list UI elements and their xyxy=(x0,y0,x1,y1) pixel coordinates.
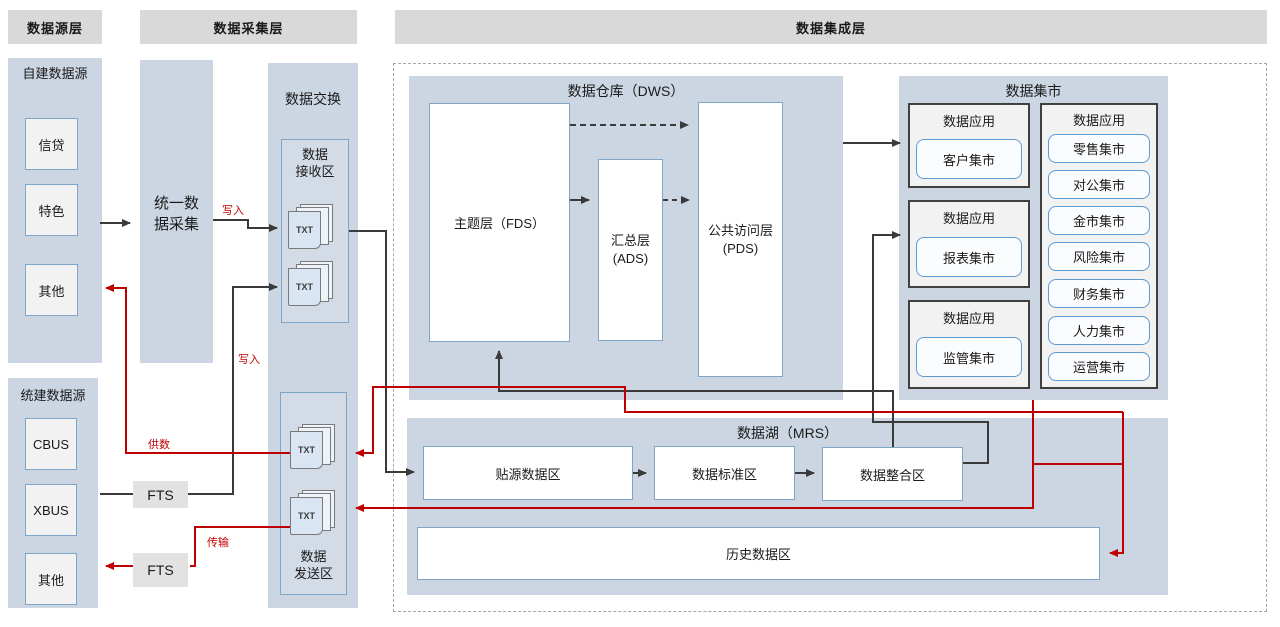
unified-source-title: 统建数据源 xyxy=(8,385,98,404)
lake-zone-source: 贴源数据区 xyxy=(423,446,633,500)
write-label-top: 写入 xyxy=(222,202,244,218)
source-box-cbus: CBUS xyxy=(25,418,77,470)
write-label-mid: 写入 xyxy=(238,351,260,367)
txt-page-icon: TXT xyxy=(288,211,321,249)
mart-pill-regulatory: 监管集市 xyxy=(916,337,1022,377)
lake-history-zone: 历史数据区 xyxy=(417,527,1100,580)
dws-title: 数据仓库（DWS） xyxy=(409,81,843,101)
mart-pill-financial-market: 金市集市 xyxy=(1048,206,1150,235)
mart-pill-report: 报表集市 xyxy=(916,237,1022,277)
send-zone-label: 数据 发送区 xyxy=(280,548,347,582)
data-app-title-1: 数据应用 xyxy=(908,111,1030,130)
architecture-diagram: 数据源层 数据采集层 数据集成层 自建数据源 信贷 特色 其他 统建数据源 CB… xyxy=(0,0,1280,627)
lake-zone-integrate: 数据整合区 xyxy=(822,447,963,501)
txt-file-icon-receive-2: TXT xyxy=(288,261,333,308)
receive-zone-label: 数据 接收区 xyxy=(281,146,349,180)
data-app-title-2: 数据应用 xyxy=(908,208,1030,227)
mart-pill-risk: 风险集市 xyxy=(1048,242,1150,271)
transfer-label: 传输 xyxy=(207,534,229,550)
txt-page-icon: TXT xyxy=(290,431,323,469)
pds-box: 公共访问层 (PDS) xyxy=(698,102,783,377)
source-box-other-self: 其他 xyxy=(25,264,78,316)
data-exchange-title: 数据交换 xyxy=(268,89,358,109)
txt-file-icon-receive-1: TXT xyxy=(288,204,333,251)
source-box-special: 特色 xyxy=(25,184,78,236)
mart-pill-customer: 客户集市 xyxy=(916,139,1022,179)
lake-zone-standard: 数据标准区 xyxy=(654,446,795,500)
source-box-xbus: XBUS xyxy=(25,484,77,536)
source-box-other-unified: 其他 xyxy=(25,553,77,605)
unified-data-collect-label: 统一数 据采集 xyxy=(140,193,213,235)
data-app-title-right: 数据应用 xyxy=(1040,110,1158,129)
data-mart-title: 数据集市 xyxy=(899,81,1168,101)
txt-file-icon-send-2: TXT xyxy=(290,490,335,537)
mart-pill-hr: 人力集市 xyxy=(1048,316,1150,345)
mart-pill-retail: 零售集市 xyxy=(1048,134,1150,163)
txt-page-icon: TXT xyxy=(288,268,321,306)
fds-box: 主题层（FDS） xyxy=(429,103,570,342)
data-app-title-3: 数据应用 xyxy=(908,308,1030,327)
source-box-credit: 信贷 xyxy=(25,118,78,170)
fts-lower-box: FTS xyxy=(133,553,188,587)
txt-page-icon: TXT xyxy=(290,497,323,535)
mart-pill-operation: 运营集市 xyxy=(1048,352,1150,381)
supply-label: 供数 xyxy=(148,436,170,452)
txt-file-icon-send-1: TXT xyxy=(290,424,335,471)
data-lake-title: 数据湖（MRS） xyxy=(407,423,1168,443)
ads-box: 汇总层 (ADS) xyxy=(598,159,663,341)
mart-pill-corporate: 对公集市 xyxy=(1048,170,1150,199)
fts-upper-box: FTS xyxy=(133,481,188,508)
mart-pill-finance: 财务集市 xyxy=(1048,279,1150,308)
self-built-source-title: 自建数据源 xyxy=(8,63,102,82)
